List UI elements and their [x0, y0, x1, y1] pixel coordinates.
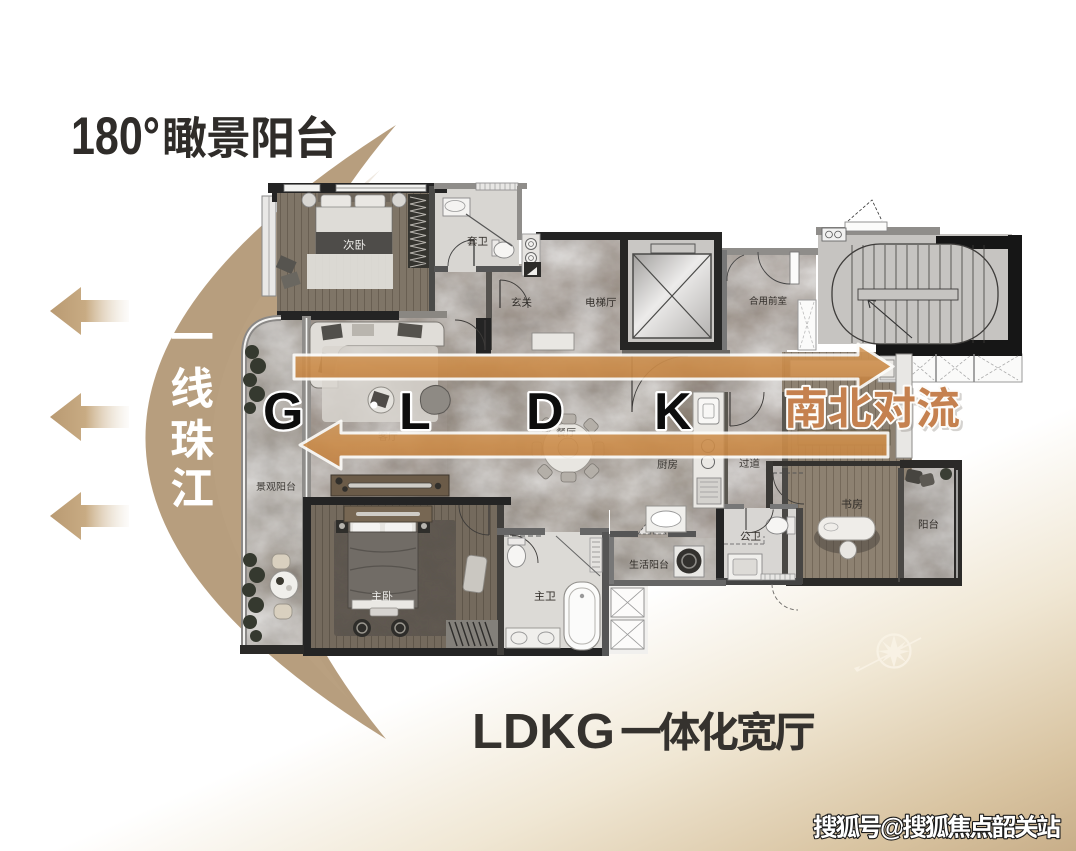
svg-text:K: K — [654, 383, 692, 441]
svg-text:G: G — [263, 383, 303, 441]
svg-text:@: @ — [880, 814, 904, 842]
svg-text:L: L — [399, 383, 431, 441]
svg-text:LDKG: LDKG — [472, 705, 615, 759]
svg-text:D: D — [526, 383, 564, 441]
svg-text:180°: 180° — [71, 107, 160, 166]
